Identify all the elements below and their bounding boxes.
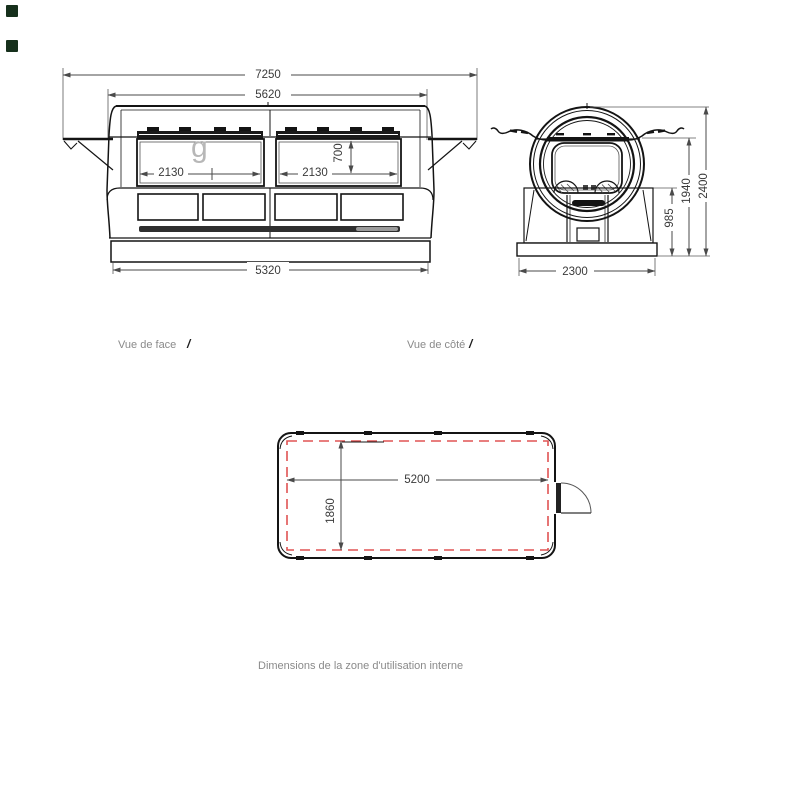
vent-panel [341, 194, 403, 220]
door-swing-arc [561, 483, 591, 513]
plan-outline [278, 433, 555, 558]
plan-view-drawing: 5200 1860 [278, 431, 591, 560]
technical-drawing: 7250 5620 [0, 0, 800, 800]
dim-label-1860: 1860 [325, 498, 337, 524]
side-view-drawing: 985 1940 2400 2300 [491, 103, 713, 278]
dim-mid-height: 1940 [681, 138, 696, 256]
dim-overall-height: 2400 [698, 107, 713, 256]
dim-label-985: 985 [664, 208, 676, 227]
dim-overall-width: 7250 [63, 66, 477, 81]
side-view-label: Vue de côté [407, 339, 465, 351]
dim-label-2400: 2400 [698, 173, 710, 199]
vent-panel [138, 194, 198, 220]
dim-base-height: 985 [664, 188, 679, 256]
front-view-label-mark: / [186, 337, 192, 351]
dim-label-5320: 5320 [255, 265, 281, 277]
dim-base-width-side: 2300 [519, 258, 655, 278]
door-leaf-closed [556, 483, 561, 513]
top-left-marker-icons [6, 5, 18, 52]
front-view-label: Vue de face [118, 339, 176, 351]
dim-label-1940: 1940 [681, 178, 693, 204]
front-base [111, 241, 430, 262]
vent-panel [275, 194, 337, 220]
plan-door [551, 482, 591, 514]
right-awning [428, 139, 477, 170]
side-view-label-mark: / [468, 337, 474, 351]
front-view-drawing: 7250 5620 [63, 66, 477, 277]
dim-label-2130-right: 2130 [302, 167, 328, 179]
dim-label-7250: 7250 [255, 69, 281, 81]
dim-label-2300: 2300 [562, 266, 588, 278]
left-awning [63, 139, 113, 170]
plan-view-caption: Dimensions de la zone d'utilisation inte… [258, 660, 463, 672]
vent-panel [203, 194, 265, 220]
dim-base-width-front: 5320 [113, 262, 428, 277]
dim-label-2130-left: 2130 [158, 167, 184, 179]
green-square-icon [6, 5, 18, 17]
dim-upper-width: 5620 [108, 86, 427, 101]
green-square-icon [6, 40, 18, 52]
dim-label-5200: 5200 [404, 474, 430, 486]
technical-drawing-page: 7250 5620 [0, 0, 800, 800]
dim-label-5620: 5620 [255, 89, 281, 101]
front-lower-section [107, 188, 433, 238]
dim-label-700: 700 [333, 143, 345, 162]
watermark-g: g [191, 131, 208, 164]
